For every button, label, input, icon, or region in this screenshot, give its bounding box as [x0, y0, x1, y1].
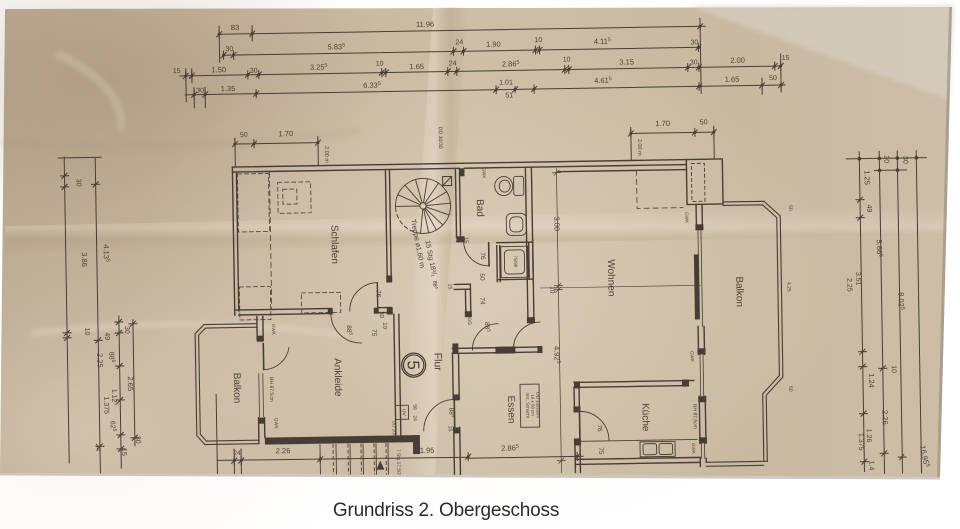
svg-text:1.65: 1.65 — [725, 75, 740, 84]
svg-text:GG: GG — [466, 317, 472, 325]
svg-text:75/90: 75/90 — [512, 255, 518, 267]
svg-text:Inst. Schacht: Inst. Schacht — [525, 392, 530, 418]
svg-text:2.25: 2.25 — [95, 353, 104, 368]
svg-text:1.375: 1.375 — [102, 396, 109, 414]
svg-text:49: 49 — [103, 332, 110, 340]
svg-text:3.51: 3.51 — [854, 272, 861, 286]
svg-text:50: 50 — [240, 132, 248, 139]
svg-text:30: 30 — [690, 39, 698, 46]
svg-text:Essen: Essen — [505, 396, 516, 424]
svg-text:16 x 68 cm: 16 x 68 cm — [530, 394, 535, 416]
svg-text:1.375: 1.375 — [857, 433, 864, 451]
svg-text:15: 15 — [173, 68, 181, 75]
svg-text:OD 15x35cm: OD 15x35cm — [535, 392, 540, 418]
svg-text:10: 10 — [563, 56, 571, 63]
svg-text:75: 75 — [370, 329, 377, 337]
svg-text:2.00 m: 2.00 m — [323, 146, 329, 163]
svg-text:10: 10 — [890, 365, 897, 373]
svg-text:30: 30 — [901, 156, 908, 164]
svg-text:30: 30 — [225, 46, 233, 53]
svg-text:1.25: 1.25 — [862, 170, 871, 185]
svg-text:51: 51 — [505, 92, 513, 99]
svg-text:10: 10 — [83, 328, 90, 336]
svg-text:30: 30 — [250, 68, 258, 75]
svg-text:GWK: GWK — [691, 443, 696, 455]
svg-text:1.50: 1.50 — [211, 65, 226, 74]
svg-text:50: 50 — [769, 75, 777, 82]
svg-text:Balkon: Balkon — [231, 373, 243, 404]
svg-text:GWK: GWK — [271, 324, 276, 336]
svg-text:Bad: Bad — [474, 199, 485, 217]
svg-text:50: 50 — [787, 205, 793, 211]
svg-text:74: 74 — [479, 297, 486, 305]
svg-text:1.95: 1.95 — [420, 446, 435, 455]
svg-text:10: 10 — [376, 61, 384, 68]
svg-text:10: 10 — [534, 37, 542, 44]
svg-text:UV: UV — [400, 409, 406, 417]
svg-text:BH 87,5cm: BH 87,5cm — [691, 404, 697, 429]
svg-text:Küche: Küche — [639, 403, 650, 432]
svg-text:1.70: 1.70 — [655, 119, 670, 128]
svg-text:30: 30 — [123, 326, 130, 334]
svg-text:1.01: 1.01 — [499, 79, 513, 86]
svg-text:76: 76 — [596, 424, 603, 432]
svg-text:30: 30 — [378, 311, 384, 318]
svg-text:DD 20/20: DD 20/20 — [392, 421, 397, 441]
svg-text:GWK: GWK — [689, 351, 694, 363]
svg-text:30: 30 — [882, 155, 889, 163]
svg-text:Schlafen: Schlafen — [328, 225, 340, 264]
svg-text:7 Stg 17,5/29: 7 Stg 17,5/29 — [395, 449, 401, 478]
svg-text:15: 15 — [782, 55, 790, 62]
svg-text:10: 10 — [381, 322, 387, 329]
svg-text:76: 76 — [479, 252, 486, 260]
svg-text:4.25: 4.25 — [785, 282, 791, 292]
svg-text:1.65: 1.65 — [409, 62, 424, 71]
svg-text:24: 24 — [412, 415, 418, 421]
svg-text:2.26: 2.26 — [276, 446, 291, 455]
svg-text:15: 15 — [463, 237, 469, 243]
svg-text:3.00: 3.00 — [552, 216, 561, 231]
svg-text:Ankleide: Ankleide — [332, 358, 344, 397]
svg-text:DD 30/30: DD 30/30 — [437, 127, 443, 149]
svg-text:56: 56 — [411, 404, 417, 410]
svg-text:2.25: 2.25 — [845, 278, 852, 292]
svg-text:15: 15 — [447, 425, 453, 431]
svg-text:2.26: 2.26 — [880, 410, 889, 425]
svg-text:3.86: 3.86 — [80, 252, 89, 267]
svg-text:GWK: GWK — [684, 212, 689, 224]
svg-text:1.24: 1.24 — [867, 373, 876, 388]
svg-text:30: 30 — [196, 88, 204, 95]
svg-text:1.4: 1.4 — [867, 461, 874, 471]
svg-text:2.65: 2.65 — [126, 376, 135, 391]
svg-text:24: 24 — [233, 450, 241, 457]
svg-text:24: 24 — [449, 60, 457, 67]
svg-text:1.26: 1.26 — [865, 429, 872, 443]
svg-text:30: 30 — [75, 179, 82, 187]
svg-text:10: 10 — [548, 286, 555, 294]
svg-text:83: 83 — [231, 23, 239, 32]
svg-text:Wohnen: Wohnen — [605, 259, 617, 296]
svg-text:15: 15 — [446, 283, 452, 289]
svg-text:1.70: 1.70 — [278, 129, 293, 138]
svg-text:76: 76 — [374, 290, 381, 298]
svg-text:24: 24 — [455, 39, 463, 46]
svg-text:50: 50 — [700, 119, 708, 126]
svg-text:GWK: GWK — [481, 167, 486, 179]
svg-text:15: 15 — [120, 448, 127, 456]
svg-text:GWK: GWK — [274, 418, 279, 430]
svg-text:50: 50 — [478, 273, 485, 281]
svg-text:75: 75 — [597, 447, 604, 455]
svg-text:1.90: 1.90 — [486, 40, 501, 49]
svg-text:Balkon: Balkon — [733, 276, 745, 307]
svg-text:5: 5 — [404, 360, 423, 370]
svg-text:49: 49 — [865, 205, 872, 213]
svg-text:1.35: 1.35 — [221, 84, 236, 93]
svg-text:2.00 m: 2.00 m — [636, 139, 642, 156]
svg-text:24: 24 — [94, 443, 101, 451]
svg-text:11.96: 11.96 — [416, 20, 434, 29]
svg-text:2.00: 2.00 — [730, 56, 745, 65]
svg-text:3.15: 3.15 — [619, 57, 634, 66]
svg-text:50: 50 — [787, 386, 793, 392]
svg-text:30: 30 — [134, 436, 141, 444]
svg-text:BH 87,5cm: BH 87,5cm — [268, 377, 274, 402]
svg-text:Flur: Flur — [431, 353, 443, 372]
svg-text:30: 30 — [690, 59, 698, 66]
